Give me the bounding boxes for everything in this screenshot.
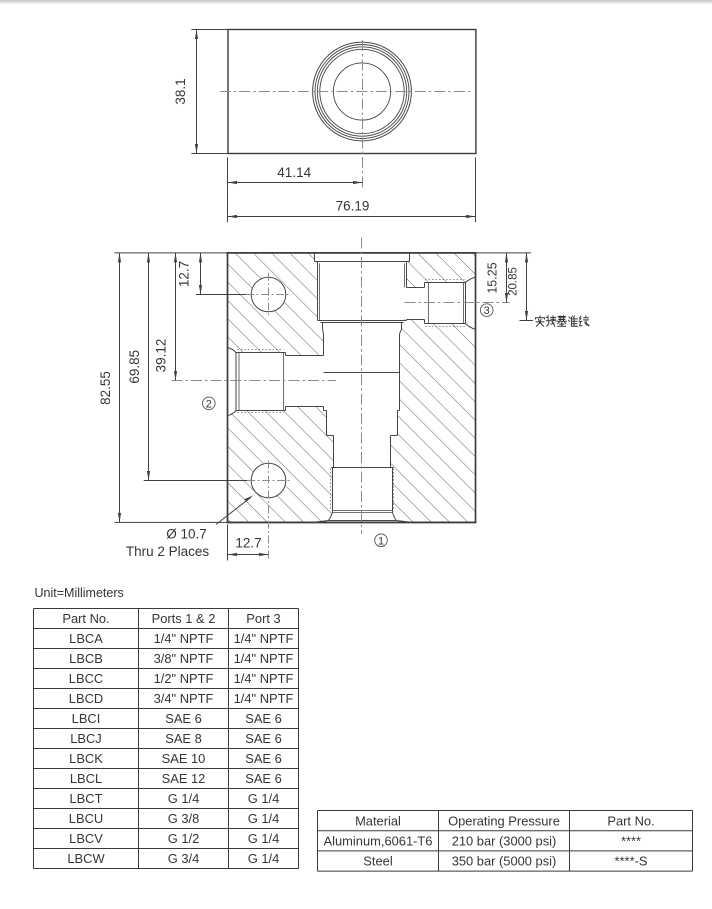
svg-text:SAE 6: SAE 6 [245,731,282,746]
svg-text:G 1/4: G 1/4 [168,791,200,806]
svg-text:1/4" NPTF: 1/4" NPTF [234,651,294,666]
svg-text:G 3/8: G 3/8 [168,811,200,826]
svg-text:SAE 6: SAE 6 [165,711,202,726]
svg-text:LBCC: LBCC [69,671,103,686]
svg-text:LBCB: LBCB [69,651,103,666]
svg-text:82.55: 82.55 [98,371,113,405]
svg-text:12.7: 12.7 [177,261,192,287]
svg-text:15.25: 15.25 [486,262,500,293]
svg-text:LBCA: LBCA [69,631,103,646]
svg-text:G 1/2: G 1/2 [168,831,200,846]
svg-text:G 1/4: G 1/4 [248,851,280,866]
svg-text:12.7: 12.7 [235,536,261,551]
svg-text:G 1/4: G 1/4 [248,831,280,846]
svg-text:Aluminum,6061-T6: Aluminum,6061-T6 [324,834,433,849]
svg-text:****: **** [621,834,641,849]
svg-text:G 1/4: G 1/4 [248,791,280,806]
svg-text:LBCJ: LBCJ [70,731,102,746]
svg-text:LBCD: LBCD [69,691,103,706]
svg-text:Port 3: Port 3 [246,611,280,626]
svg-text:LBCV: LBCV [69,831,103,846]
svg-text:LBCK: LBCK [69,751,103,766]
svg-text:41.14: 41.14 [277,165,311,180]
svg-text:350 bar (5000 psi): 350 bar (5000 psi) [452,854,557,869]
svg-text:****-S: ****-S [615,854,648,869]
svg-text:3: 3 [484,305,490,317]
svg-text:210 bar (3000 psi): 210 bar (3000 psi) [452,834,557,849]
svg-text:38.1: 38.1 [173,78,188,104]
svg-text:2: 2 [206,398,212,410]
svg-text:G 1/4: G 1/4 [248,811,280,826]
svg-text:1/4" NPTF: 1/4" NPTF [154,631,214,646]
svg-text:Part No.: Part No. [62,611,109,626]
svg-text:LBCW: LBCW [67,851,105,866]
svg-text:LBCU: LBCU [69,811,103,826]
svg-text:20.85: 20.85 [507,267,519,296]
svg-text:LBCT: LBCT [70,791,103,806]
svg-text:1/4" NPTF: 1/4" NPTF [234,631,294,646]
svg-text:1: 1 [378,535,384,547]
svg-text:Thru 2 Places: Thru 2 Places [126,544,210,559]
svg-text:SAE 10: SAE 10 [162,751,206,766]
svg-text:SAE 6: SAE 6 [245,711,282,726]
svg-text:Ports 1 & 2: Ports 1 & 2 [152,611,216,626]
svg-text:LBCI: LBCI [72,711,101,726]
svg-text:Steel: Steel [363,854,392,869]
svg-text:3/4" NPTF: 3/4" NPTF [154,691,214,706]
svg-text:76.19: 76.19 [336,199,370,214]
svg-text:39.12: 39.12 [154,339,169,373]
svg-text:69.85: 69.85 [127,350,142,384]
svg-text:Material: Material [355,813,401,828]
svg-text:Unit=Millimeters: Unit=Millimeters [35,586,124,600]
svg-text:1/4" NPTF: 1/4" NPTF [234,671,294,686]
svg-text:SAE 8: SAE 8 [165,731,202,746]
svg-text:1/4" NPTF: 1/4" NPTF [234,691,294,706]
svg-text:Part No.: Part No. [607,813,654,828]
svg-text:LBCL: LBCL [70,771,102,786]
svg-text:3/8" NPTF: 3/8" NPTF [154,651,214,666]
svg-text:SAE 6: SAE 6 [245,771,282,786]
svg-text:G 3/4: G 3/4 [168,851,200,866]
svg-text:Operating Pressure: Operating Pressure [448,813,560,828]
svg-text:SAE 12: SAE 12 [162,771,206,786]
svg-text:1/2" NPTF: 1/2" NPTF [154,671,214,686]
svg-text:SAE 6: SAE 6 [245,751,282,766]
svg-text:Ø 10.7: Ø 10.7 [166,527,207,542]
